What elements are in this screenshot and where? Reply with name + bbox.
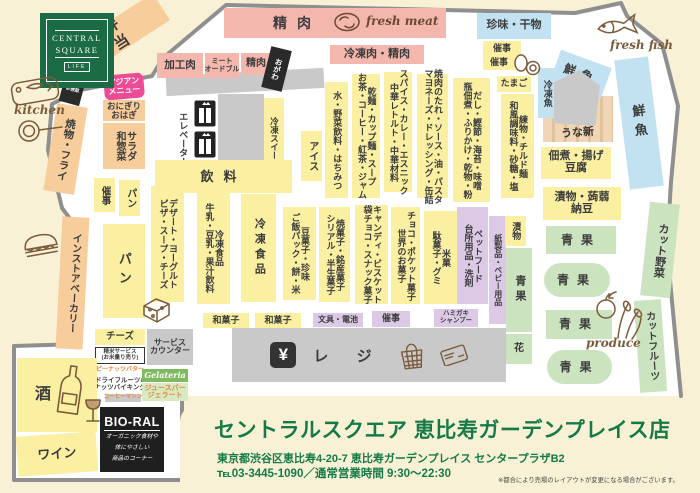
frying-pan-icon	[14, 116, 66, 146]
eggs-shelf: たまご	[497, 76, 531, 92]
yen-icon: ¥	[270, 342, 296, 368]
pickles-small: 漬物	[505, 216, 526, 246]
fresh-meat-label: fresh meat	[366, 14, 438, 28]
spice-curry-ethnic: スパイス・カレー・エスニック中華レトルト・中華材料	[384, 72, 412, 192]
meat-icon	[332, 10, 362, 34]
fish-icon	[594, 12, 644, 40]
toothpaste-shampoo: ハミガキシャンプー	[434, 309, 478, 327]
wagashi-b: 和菓子	[255, 313, 301, 328]
onigiri-ohagi: おにぎりおはぎ	[103, 100, 145, 121]
fishcake-chilled-noodles: 練物・チルド麺和風調味料・砂糖・塩	[501, 94, 534, 198]
logo-rule-top	[55, 30, 99, 31]
ice-cream: アイス	[301, 131, 322, 181]
bean-snacks-rice-pack: 豆菓子・珍味ご飯パック・餅・米	[283, 207, 316, 300]
bioral-corner: BIO-RAL オーガニック食材や 体にやさしい 商品のコーナー	[100, 407, 164, 472]
cheese-icon	[138, 294, 174, 326]
cheese-corner: チーズ	[95, 329, 145, 345]
rice-milling-service: 精米サービス(お米量り売り)	[95, 347, 145, 364]
logo-line-1: CENTRAL	[52, 33, 102, 43]
service-counter: サービスカウンター	[147, 329, 193, 365]
baked-sweets-cereal: 焼菓子・銘産菓子シリアル・半生菓子	[319, 207, 350, 302]
dashi-seaweed-miso: だし・鰹節・海苔・味噌瓶佃煮・ふりかけ・乾物・粉	[453, 78, 490, 202]
coffee-machine: コーヒーマシン	[105, 394, 141, 402]
elevator-icon	[194, 131, 216, 158]
store-address: 東京都渋谷区恵比寿4-20-7 恵比寿ガーデンプレイス センタープラザB2	[217, 450, 565, 466]
candy-biscuits: キャンディ・ビスケット袋チョコ・スナック菓子	[355, 205, 388, 304]
store-name: セントラルスクエア 恵比寿ガーデンプレイス店	[214, 414, 671, 444]
elevator-icon	[194, 100, 216, 127]
processed-meat: 加工肉	[157, 53, 203, 78]
logo-rule-bottom	[55, 57, 99, 58]
paper-baby-products: 紙製品・ベビー用品	[489, 216, 506, 324]
fresh-fish-label: fresh fish	[610, 38, 673, 52]
delicacies-dried-fish: 珍味・干物	[477, 13, 551, 39]
logo-line-3: LIFE	[64, 62, 91, 72]
pickles-konnyaku-natto: 漬物・蒟蒻納豆	[543, 187, 621, 220]
cutting-board-icon	[8, 74, 62, 108]
wagashi-a: 和菓子	[203, 313, 249, 328]
meat-band-label: 精肉	[258, 12, 336, 34]
store-floor-map: うな新 弁当精肉加工肉ミートオードブル精肉おがわ冷凍肉・精肉珍味・干物催事催事た…	[0, 0, 700, 493]
event-space-left: 催事	[94, 178, 115, 212]
wine: ワイン	[16, 431, 99, 476]
store-note: ※都合により売場のレイアウトが変更になる場合がございます。	[498, 475, 679, 484]
stationery-batteries: 文具・電池	[313, 313, 363, 327]
eggs-icon	[512, 52, 542, 78]
produce-1: 青果	[546, 226, 616, 254]
meat-hors-doeuvre: ミートオードブル	[205, 53, 239, 78]
payment-card-icon	[440, 344, 468, 366]
peanut-butter: ピーナッツバター	[97, 366, 143, 375]
logo-line-2: SQUARE	[55, 45, 98, 55]
shopping-basket-icon	[397, 339, 427, 371]
event-space-b: 催事	[483, 56, 515, 70]
bread-small: パン	[119, 180, 140, 216]
rice-crackers-gummies: 米菓駄菓子・グミ	[424, 211, 457, 304]
flowers: 花	[506, 334, 532, 364]
bioral-desc-1: オーガニック食材や	[106, 434, 158, 442]
milk-soymilk-juice: 冷凍食品牛乳・豆乳・果汁飲料	[197, 192, 230, 304]
sandwich-icon	[20, 230, 62, 262]
bottle-glass-icon	[56, 364, 102, 426]
bioral-desc-2: 体にやさしい	[115, 445, 150, 453]
petfood-kitchen-detergent: ペットフード台所用品・洗剤	[457, 207, 488, 304]
dried-fruits-nuts: ドライフルーツ&ナッツバイキング	[95, 376, 145, 393]
dessert-yogurt-pizza: デザート・ヨーグルトピザ・スープ・チーズ	[151, 186, 184, 302]
dried-noodles-tea-coffee: 乾麺・カップ麺・スープお茶・コーヒー・紅茶・ジャム	[352, 74, 380, 198]
bioral-logo: BIO-RAL	[104, 415, 160, 431]
elevator-shaft	[218, 94, 264, 162]
water-vegetable-juice-honey: 水・野菜飲料・はちみつ	[325, 82, 348, 198]
yakiniku-sauce-oil-pasta: 焼肉のたれ・ソース・油・パスタマヨネーズ・ドレッシング・缶詰	[417, 74, 448, 198]
salad-side-dishes: サラダ和惣菜	[103, 123, 145, 169]
frozen-meat: 冷凍肉・精肉	[330, 45, 424, 64]
chocolate-world-snacks: チョコ・ポケット菓子世界のお菓子	[391, 207, 420, 304]
produce-4: 青果	[547, 350, 612, 384]
leafy-greens-icon	[612, 298, 644, 340]
bioral-desc-3: 商品のコーナー	[112, 456, 153, 464]
juice-bar-gelato: ジュースバージェラート	[142, 383, 188, 401]
frozen-foods: 冷凍食品	[241, 194, 276, 302]
unagi-counter-label: うな新	[560, 123, 594, 141]
event-space-c: 催事	[372, 311, 410, 327]
tsukudani-fried-tofu: 佃煮・揚げ豆腐	[541, 147, 611, 179]
checkout-area: ¥ レ ジ	[232, 328, 506, 382]
gelateria: Gelateria	[142, 369, 188, 382]
store-tel-hours: ℡03-3445-1090／通常営業時間 9:30～22:30	[217, 465, 451, 481]
produce-strip: 青果	[506, 248, 532, 332]
register-label: レ ジ	[309, 345, 383, 366]
